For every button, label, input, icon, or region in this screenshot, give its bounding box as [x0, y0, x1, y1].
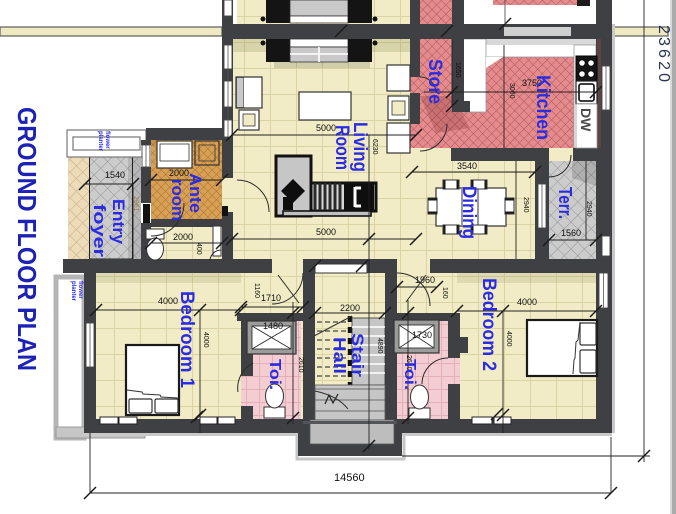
- svg-text:GROUND FLOOR PLAN: GROUND FLOOR PLAN: [12, 107, 42, 371]
- svg-text:4890: 4890: [376, 338, 383, 354]
- svg-text:DW: DW: [578, 108, 594, 132]
- svg-text:3540: 3540: [457, 161, 477, 171]
- svg-text:2940: 2940: [522, 197, 529, 213]
- svg-text:Hall: Hall: [330, 337, 349, 374]
- svg-text:1560: 1560: [561, 228, 581, 238]
- svg-text:4000: 4000: [202, 332, 209, 348]
- svg-text:2200: 2200: [340, 303, 360, 313]
- svg-text:Dining: Dining: [458, 186, 479, 239]
- svg-text:Stair: Stair: [348, 333, 367, 377]
- svg-text:2610: 2610: [297, 357, 304, 373]
- svg-text:Terr.: Terr.: [555, 187, 575, 219]
- svg-text:160: 160: [441, 287, 448, 299]
- svg-text:1540: 1540: [105, 170, 125, 180]
- svg-text:1160: 1160: [253, 283, 260, 298]
- svg-text:planter: planter: [97, 131, 103, 152]
- svg-text:2000: 2000: [173, 232, 193, 242]
- svg-text:2940: 2940: [585, 201, 592, 217]
- svg-text:Ante: Ante: [186, 173, 205, 213]
- svg-text:5000: 5000: [316, 227, 336, 237]
- svg-text:1730: 1730: [412, 330, 432, 340]
- svg-text:Bedroom 2: Bedroom 2: [478, 278, 499, 371]
- svg-text:6230: 6230: [371, 139, 378, 155]
- svg-text:400: 400: [195, 243, 202, 255]
- svg-text:Toi.: Toi.: [401, 359, 418, 390]
- svg-text:room: room: [168, 179, 187, 221]
- svg-text:23620: 23620: [655, 25, 672, 82]
- svg-text:Room: Room: [331, 125, 352, 170]
- svg-text:1650: 1650: [454, 62, 461, 78]
- svg-text:4000: 4000: [158, 296, 178, 306]
- svg-text:flower: flower: [77, 281, 83, 299]
- svg-text:Kitchen: Kitchen: [532, 75, 553, 140]
- svg-text:1710: 1710: [261, 293, 281, 303]
- svg-text:foyer: foyer: [90, 204, 109, 257]
- svg-text:2961: 2961: [132, 196, 139, 212]
- svg-text:4000: 4000: [505, 331, 512, 347]
- svg-text:3060: 3060: [508, 83, 515, 99]
- svg-text:4000: 4000: [517, 297, 537, 307]
- svg-text:flower: flower: [104, 131, 110, 149]
- svg-text:1480: 1480: [263, 321, 283, 331]
- svg-text:planter: planter: [70, 281, 76, 302]
- svg-text:1960: 1960: [415, 275, 435, 285]
- svg-text:14560: 14560: [334, 472, 365, 484]
- svg-text:Store: Store: [424, 59, 445, 104]
- svg-text:Bedroom 1: Bedroom 1: [176, 291, 197, 388]
- svg-text:Entry: Entry: [109, 199, 128, 245]
- svg-text:Toi.: Toi.: [266, 359, 283, 390]
